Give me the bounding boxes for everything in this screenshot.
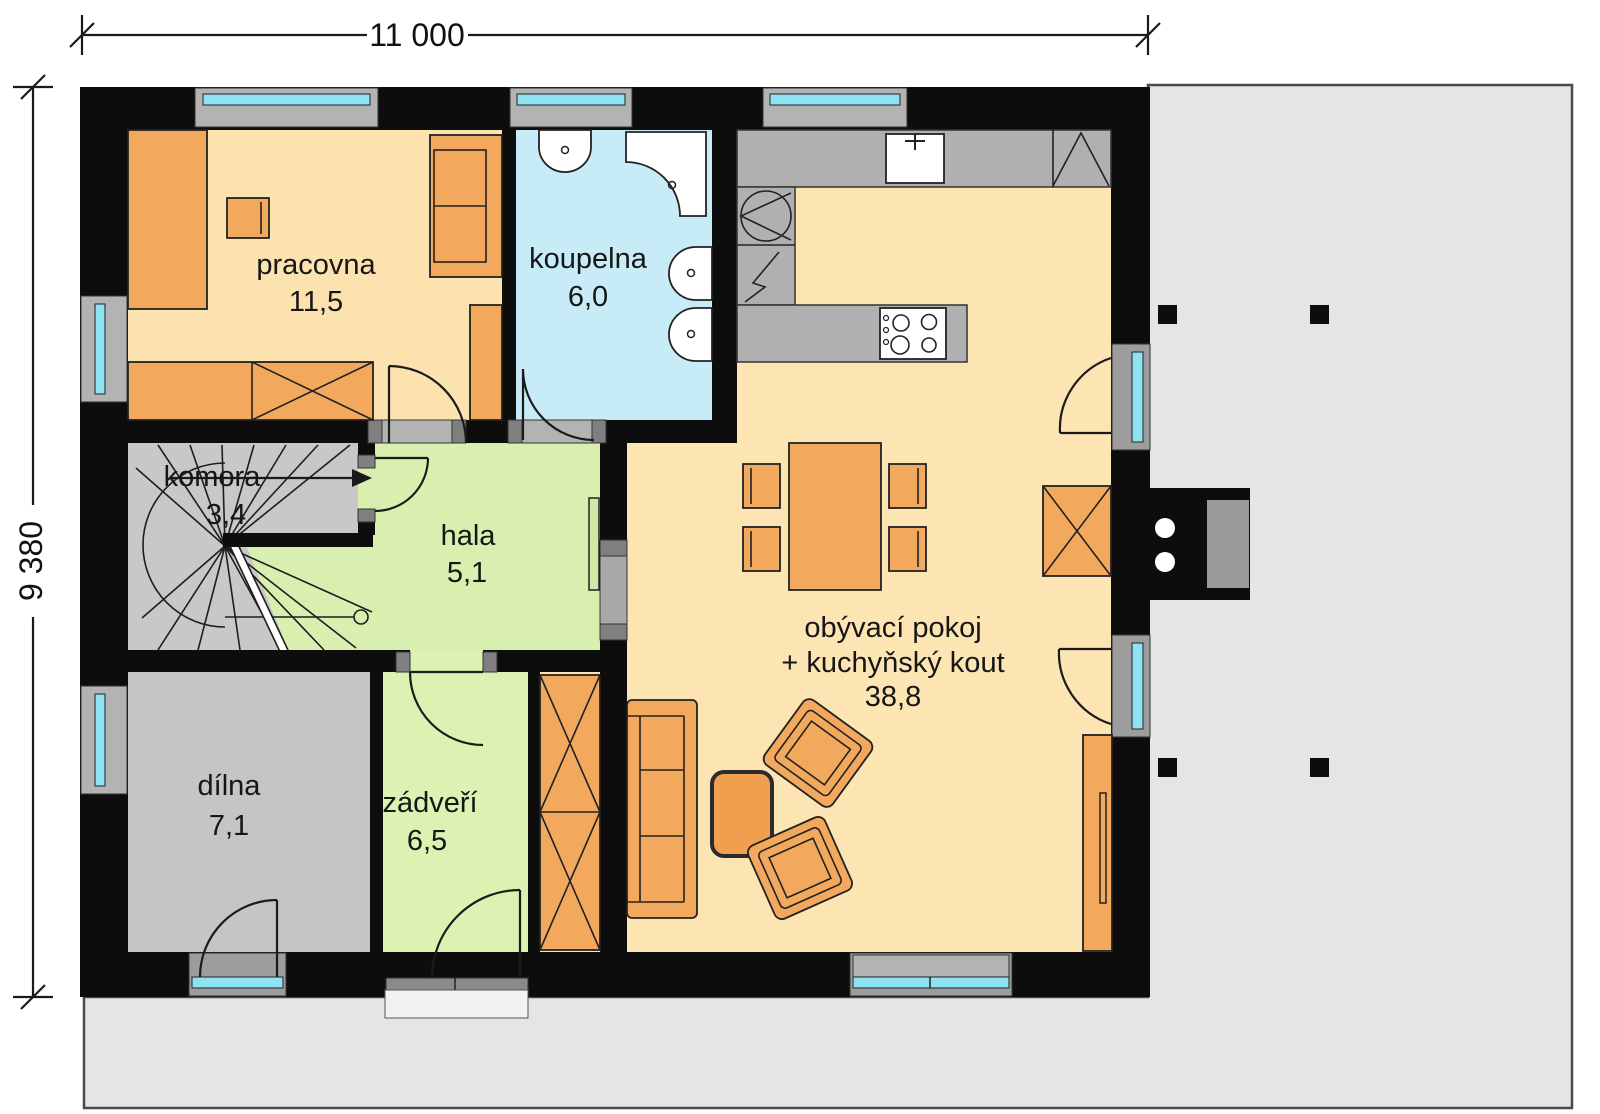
window-dilna-left bbox=[81, 686, 127, 794]
label-zadveri: zádveří bbox=[382, 787, 477, 819]
dining-chair bbox=[889, 527, 926, 571]
label-hala-area: 5,1 bbox=[447, 557, 487, 589]
room-zadveri bbox=[383, 672, 528, 978]
label-zadveri-area: 6,5 bbox=[407, 825, 447, 857]
study-sofa bbox=[430, 135, 502, 277]
desk-chair bbox=[227, 198, 269, 238]
terrace-post bbox=[1310, 305, 1329, 324]
sideboard-cabinet bbox=[1083, 735, 1112, 951]
label-obyvaci-area: 38,8 bbox=[865, 681, 921, 713]
entry-step bbox=[385, 990, 528, 1018]
window-pracovna-left bbox=[81, 296, 127, 402]
label-hala: hala bbox=[441, 520, 497, 552]
sofa bbox=[627, 700, 697, 918]
window-living-bottom bbox=[850, 953, 1012, 996]
open-door-leaf bbox=[589, 498, 599, 590]
label-obyvaci-line2: + kuchyňský kout bbox=[781, 647, 1004, 679]
window-kitchen-top bbox=[763, 88, 907, 127]
sink-icon bbox=[886, 134, 944, 183]
chimney bbox=[1111, 488, 1250, 600]
tall-cabinet bbox=[470, 305, 502, 420]
fireplace bbox=[1043, 486, 1111, 576]
label-pracovna-area: 11,5 bbox=[289, 286, 343, 318]
label-koupelna: koupelna bbox=[529, 243, 648, 275]
dining-chair bbox=[743, 527, 780, 571]
dining-chair bbox=[743, 464, 780, 508]
dining-chair bbox=[889, 464, 926, 508]
chimney-flue bbox=[1155, 518, 1175, 538]
dimension-height-label: 9 380 bbox=[13, 521, 49, 601]
terrace-post bbox=[1158, 305, 1177, 324]
label-dilna: dílna bbox=[198, 770, 262, 802]
floor-plan: pracovna 11,5 koupelna 6,0 komora 3,4 ha… bbox=[0, 0, 1600, 1114]
label-koupelna-area: 6,0 bbox=[568, 281, 608, 313]
dimension-left: 9 380 bbox=[13, 75, 53, 1009]
chimney-flue bbox=[1155, 552, 1175, 572]
dimension-top: 11 000 bbox=[70, 15, 1160, 55]
stove-icon bbox=[880, 308, 946, 359]
label-komora: komora bbox=[164, 461, 262, 493]
dining-table bbox=[789, 443, 881, 590]
window-koupelna-top bbox=[510, 88, 632, 127]
desk bbox=[128, 130, 207, 309]
washbasin-icon bbox=[539, 130, 591, 172]
label-komora-area: 3,4 bbox=[206, 499, 246, 531]
label-pracovna: pracovna bbox=[256, 249, 376, 281]
terrace-post bbox=[1310, 758, 1329, 777]
terrace-post bbox=[1158, 758, 1177, 777]
built-in-wardrobe bbox=[540, 675, 600, 950]
stair-stub-wall bbox=[223, 533, 373, 547]
dimension-width-label: 11 000 bbox=[369, 17, 465, 53]
label-obyvaci-line1: obývací pokoj bbox=[804, 612, 981, 644]
label-dilna-area: 7,1 bbox=[209, 810, 249, 842]
low-cabinet bbox=[128, 362, 373, 420]
window-pracovna-top bbox=[195, 88, 378, 127]
